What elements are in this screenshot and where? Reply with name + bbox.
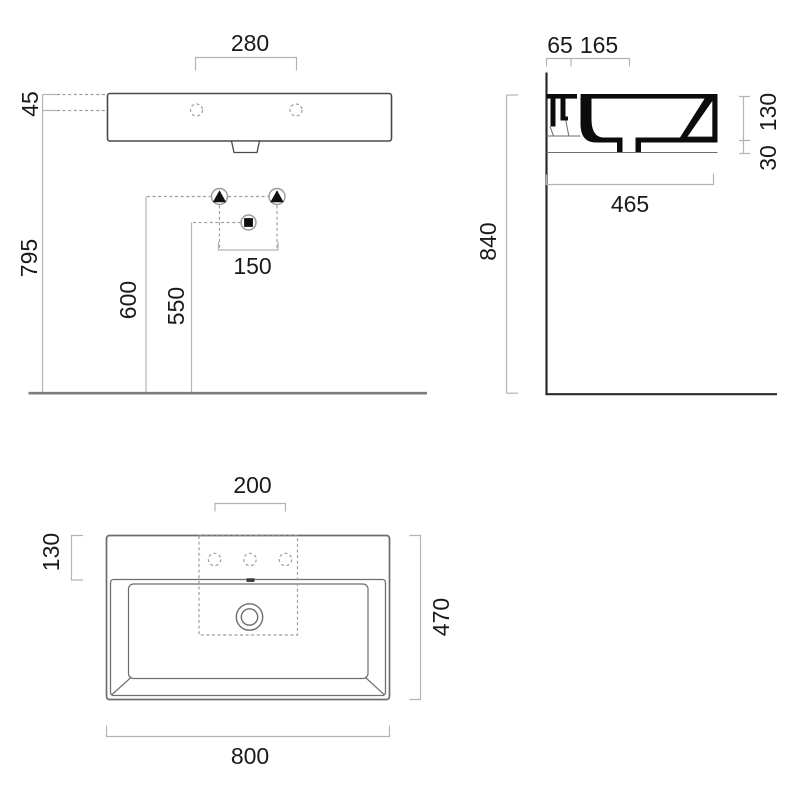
- sink-front-outline: [108, 94, 392, 142]
- dim-label-550: 550: [163, 287, 189, 325]
- dim-label-600: 600: [115, 281, 141, 319]
- dim-label-465: 465: [611, 191, 649, 217]
- dim-bracket-65-165: [547, 59, 630, 67]
- dim-label-30: 30: [755, 145, 781, 171]
- dim-label-130-plan: 130: [38, 533, 64, 571]
- dim-bracket-470: [410, 536, 421, 700]
- dim-label-800: 800: [231, 743, 269, 769]
- dim-bracket-130-30: [739, 97, 750, 154]
- drawing-canvas: 280 45 795 600 550: [0, 0, 800, 800]
- basin-section: [547, 94, 718, 153]
- dim-label-470: 470: [428, 598, 454, 636]
- dim-bracket-280: [196, 58, 297, 71]
- dim-label-65: 65: [547, 32, 573, 58]
- front-view: 280 45 795 600 550: [16, 30, 427, 393]
- sink-plan-outline: [107, 536, 390, 700]
- dim-bracket-465: [547, 174, 714, 185]
- fixing-point-marker: [269, 189, 285, 205]
- dim-bracket-130-plan: [72, 536, 84, 581]
- dim-label-130-side: 130: [755, 93, 781, 131]
- dim-label-200: 200: [233, 472, 271, 498]
- dim-label-840: 840: [475, 222, 501, 260]
- dim-label-165: 165: [580, 32, 618, 58]
- drain-point-marker: [241, 215, 256, 230]
- plan-view: 200 130 470 800: [38, 472, 454, 769]
- technical-drawing-page: 280 45 795 600 550: [0, 0, 800, 800]
- dim-bracket-800: [107, 726, 390, 737]
- side-section-view: 65 165 840: [475, 32, 781, 394]
- dim-label-795: 795: [16, 239, 42, 277]
- dim-label-280: 280: [231, 30, 269, 56]
- fixing-point-marker: [212, 189, 228, 205]
- dim-bracket-200: [215, 504, 286, 512]
- dim-label-150: 150: [233, 253, 271, 279]
- overflow-mark: [247, 578, 255, 582]
- dim-bracket-150: [219, 242, 279, 250]
- dim-label-45: 45: [17, 91, 43, 117]
- drain-stub-front: [232, 141, 260, 153]
